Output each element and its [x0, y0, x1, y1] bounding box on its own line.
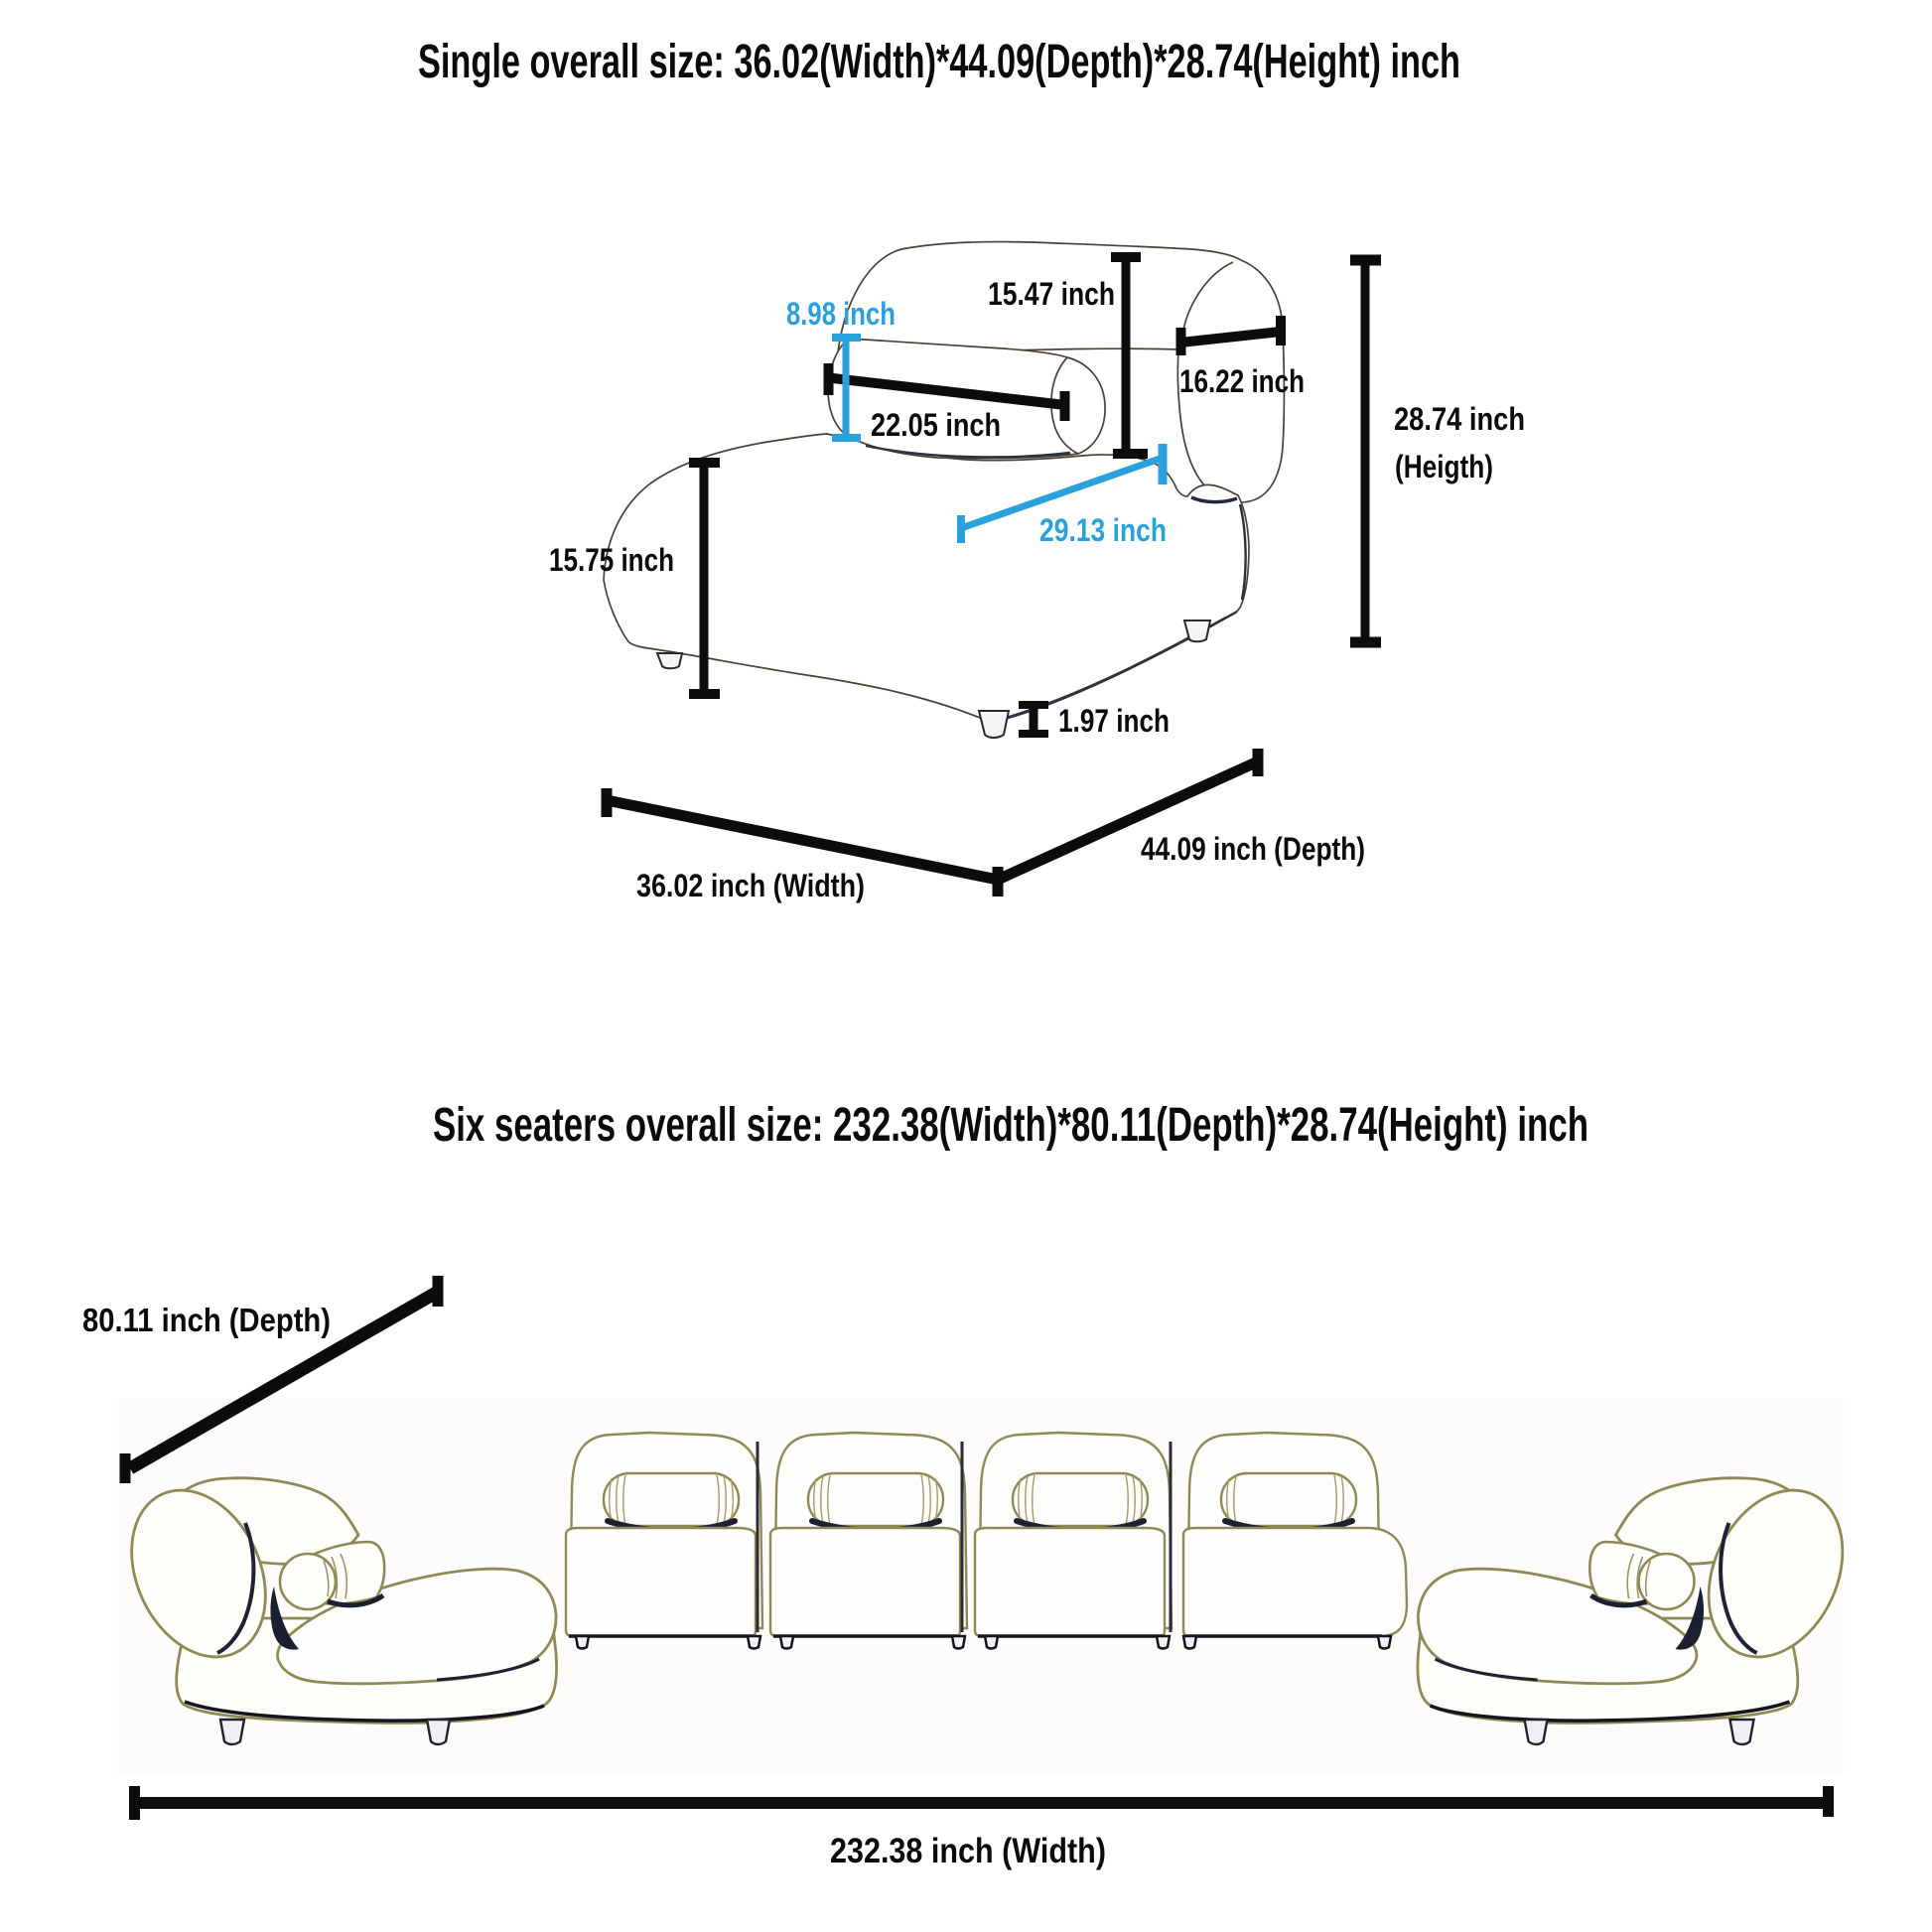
svg-text:15.75 inch: 15.75 inch [549, 542, 674, 578]
svg-text:16.22 inch: 16.22 inch [1179, 363, 1305, 399]
svg-text:Single overall size: 36.02(Wid: Single overall size: 36.02(Width)*44.09(… [418, 36, 1460, 88]
svg-text:36.02 inch (Width): 36.02 inch (Width) [636, 868, 865, 903]
svg-text:29.13 inch: 29.13 inch [1039, 512, 1167, 548]
svg-text:22.05 inch: 22.05 inch [871, 407, 1001, 443]
svg-text:1.97 inch: 1.97 inch [1058, 703, 1170, 739]
svg-text:15.47 inch: 15.47 inch [988, 276, 1115, 312]
svg-text:44.09 inch (Depth): 44.09 inch (Depth) [1141, 831, 1365, 867]
svg-text:28.74 inch: 28.74 inch [1394, 401, 1525, 437]
svg-text:232.38 inch (Width): 232.38 inch (Width) [830, 1832, 1106, 1870]
svg-text:80.11 inch (Depth): 80.11 inch (Depth) [82, 1302, 331, 1338]
svg-text:(Heigth): (Heigth) [1395, 449, 1493, 484]
svg-text:8.98 inch: 8.98 inch [786, 296, 896, 332]
svg-text:Six seaters overall size: 232.: Six seaters overall size: 232.38(Width)*… [433, 1099, 1588, 1152]
